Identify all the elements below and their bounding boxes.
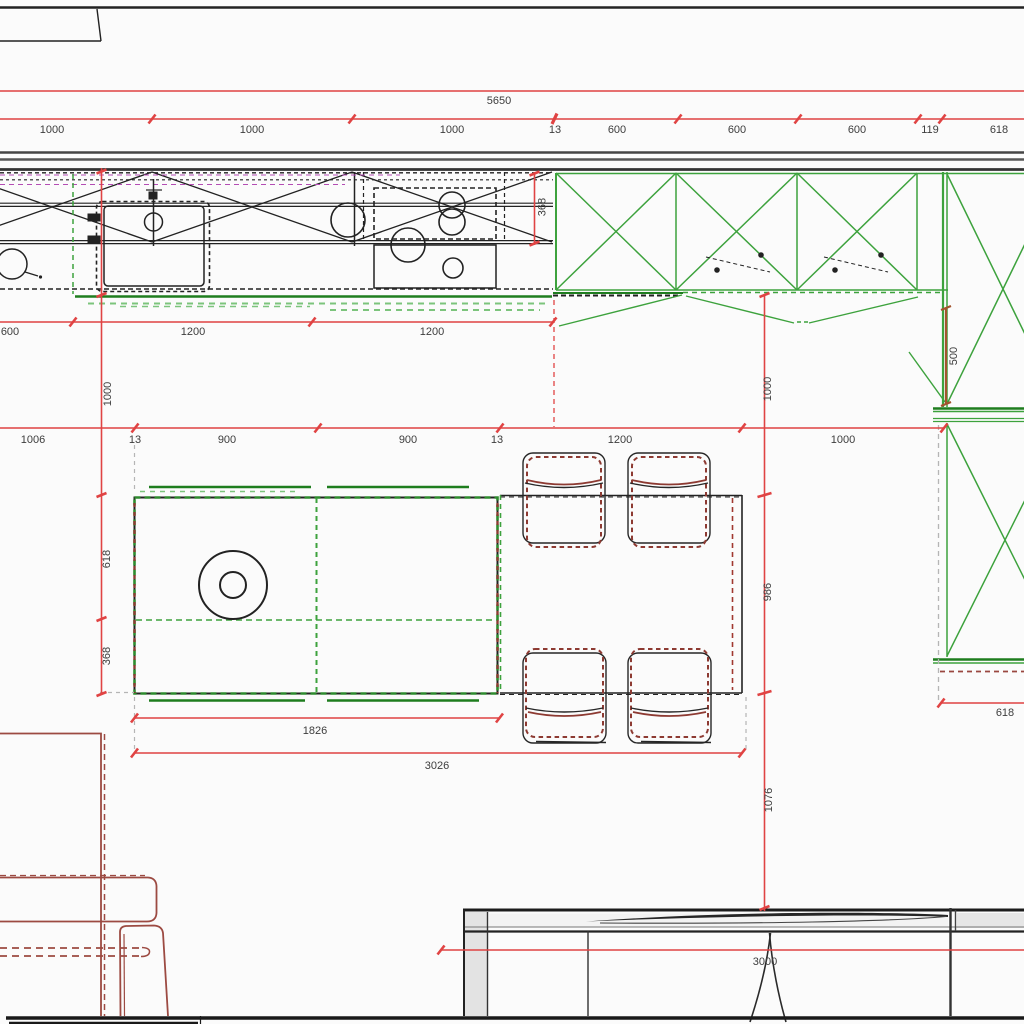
svg-text:1076: 1076 bbox=[763, 788, 775, 812]
svg-text:1006: 1006 bbox=[21, 434, 45, 446]
svg-text:900: 900 bbox=[218, 434, 236, 446]
svg-text:618: 618 bbox=[101, 550, 113, 568]
svg-text:1200: 1200 bbox=[608, 434, 632, 446]
svg-text:600: 600 bbox=[848, 124, 866, 136]
svg-text:500: 500 bbox=[948, 347, 960, 365]
svg-text:1000: 1000 bbox=[102, 382, 114, 406]
svg-text:119: 119 bbox=[921, 124, 939, 136]
svg-text:13: 13 bbox=[129, 434, 141, 446]
svg-text:13: 13 bbox=[491, 434, 503, 446]
svg-text:1000: 1000 bbox=[40, 124, 64, 136]
svg-text:13: 13 bbox=[549, 124, 561, 136]
svg-text:368: 368 bbox=[101, 647, 113, 665]
svg-text:368: 368 bbox=[537, 198, 549, 216]
svg-text:1000: 1000 bbox=[440, 124, 464, 136]
svg-text:1200: 1200 bbox=[420, 326, 444, 338]
svg-text:600: 600 bbox=[1, 326, 19, 338]
svg-text:3000: 3000 bbox=[753, 956, 777, 968]
svg-text:600: 600 bbox=[608, 124, 626, 136]
svg-text:5650: 5650 bbox=[487, 95, 511, 107]
svg-text:986: 986 bbox=[762, 583, 774, 601]
svg-text:1826: 1826 bbox=[303, 725, 327, 737]
svg-text:1000: 1000 bbox=[831, 434, 855, 446]
svg-text:3026: 3026 bbox=[425, 760, 449, 772]
svg-text:618: 618 bbox=[996, 707, 1014, 719]
svg-text:1000: 1000 bbox=[240, 124, 264, 136]
svg-text:600: 600 bbox=[728, 124, 746, 136]
svg-text:900: 900 bbox=[399, 434, 417, 446]
svg-text:618: 618 bbox=[990, 124, 1008, 136]
svg-text:1000: 1000 bbox=[762, 377, 774, 401]
svg-text:1200: 1200 bbox=[181, 326, 205, 338]
